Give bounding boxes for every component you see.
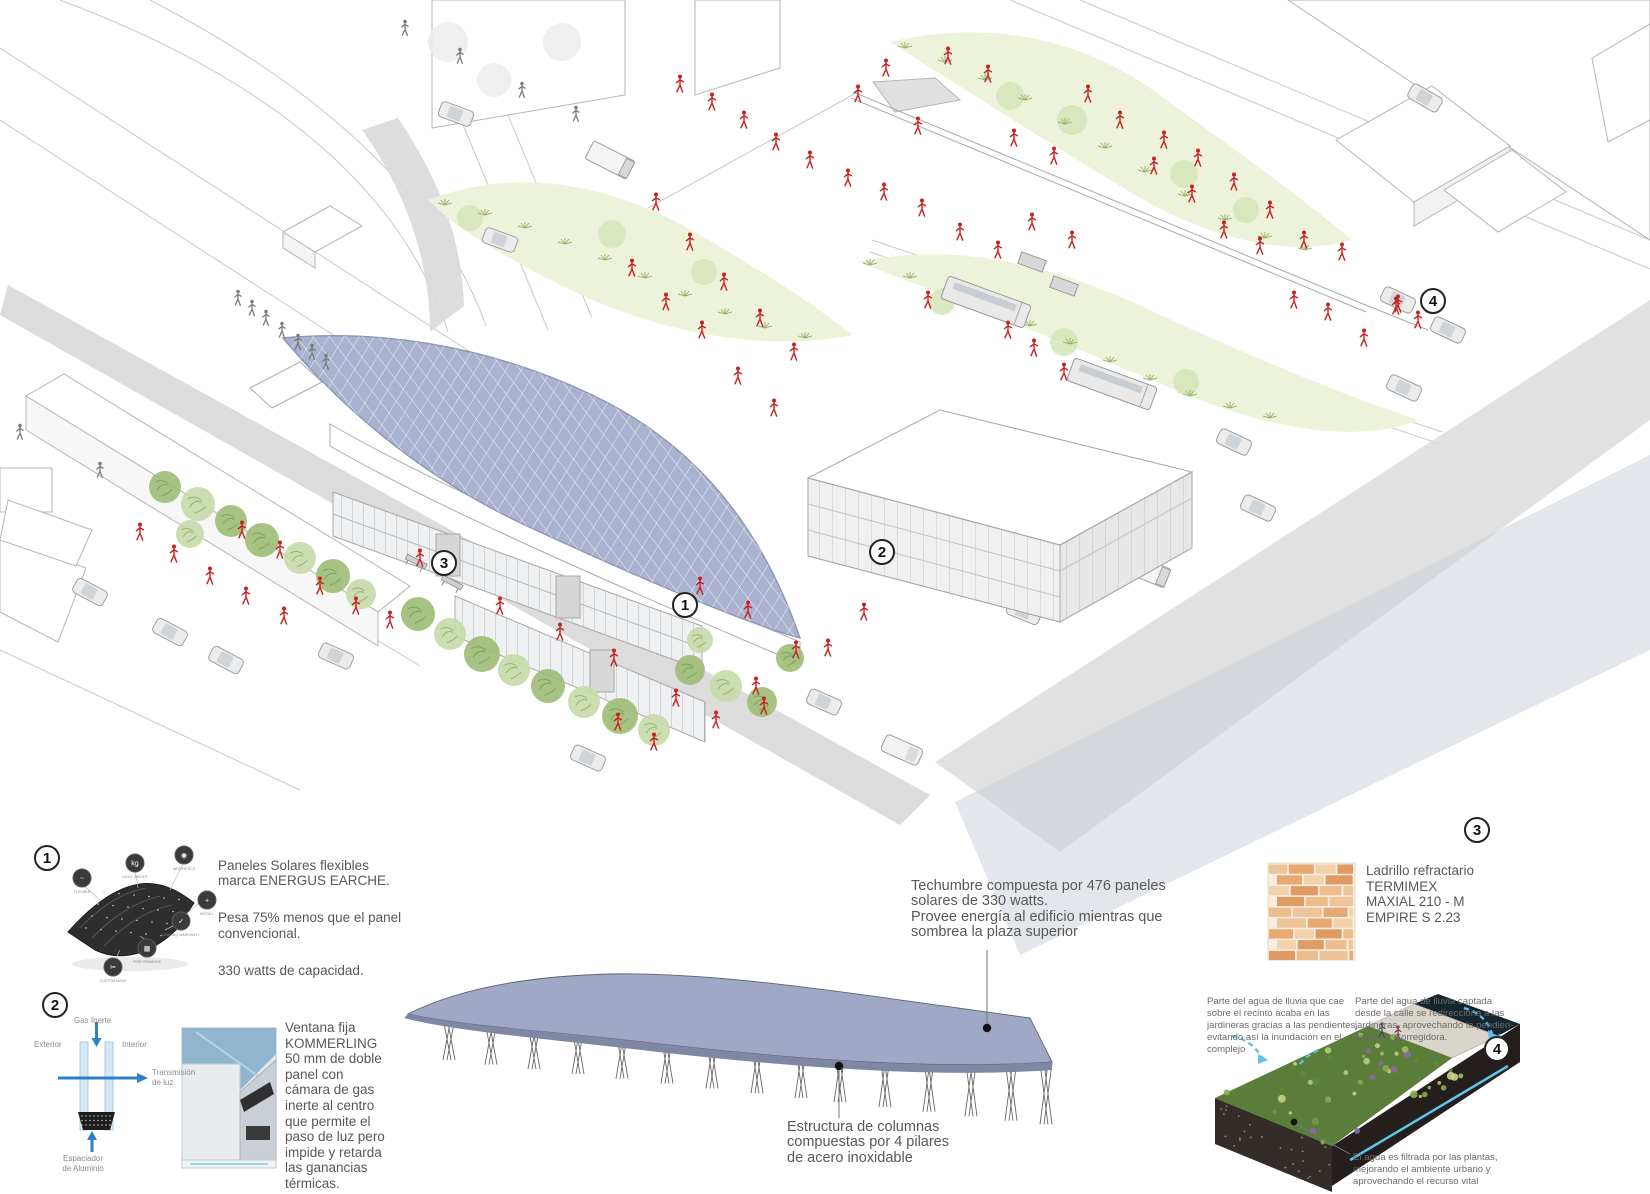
- gas-inerte-label: Gas Inerte: [74, 1016, 111, 1026]
- scene-marker-2: 2: [869, 539, 895, 565]
- svg-text:▦: ▦: [144, 946, 151, 953]
- person-figure: [652, 193, 659, 211]
- car-vehicle: [207, 645, 245, 675]
- person-figure: [772, 133, 779, 151]
- water-note-right: Parte del agua de lluvia captada desde l…: [1355, 996, 1525, 1044]
- interior-label: Interior: [122, 1040, 147, 1050]
- car-vehicle: [71, 577, 109, 607]
- person-figure: [279, 322, 285, 338]
- faint-tree: [457, 205, 483, 231]
- tree: [176, 520, 204, 548]
- person-figure: [573, 106, 579, 122]
- person-figure: [1010, 129, 1017, 147]
- svg-text:+: +: [205, 898, 209, 905]
- aluminium-spacer: [78, 1112, 115, 1130]
- feature-icon-flexible: ~FLEXIBLE: [73, 869, 91, 894]
- person-figure: [734, 367, 741, 385]
- solar-panel-note: Paneles Solares flexibles marca ENERGUS …: [218, 842, 418, 994]
- presentation-board: ~FLEXIBLEkgLIGHT WEIGHT◉AESTHETICS+INSTA…: [0, 0, 1650, 1194]
- espaciador-label: Espaciador de Aluminio: [48, 1154, 118, 1173]
- faint-tree: [1233, 197, 1259, 223]
- person-figure: [770, 399, 777, 417]
- tree: [568, 686, 600, 718]
- person-figure: [170, 545, 177, 563]
- faint-tree: [428, 22, 468, 62]
- solar-panel-product-image: ~FLEXIBLEkgLIGHT WEIGHT◉AESTHETICS+INSTA…: [68, 846, 216, 983]
- solar-panel-note-p2: Pesa 75% menos que el panel convencional…: [218, 910, 418, 941]
- feature-icon-install: +INSTALL: [198, 891, 216, 916]
- window-profile-photo: [182, 1028, 276, 1168]
- tree: [284, 542, 316, 574]
- person-figure: [918, 199, 925, 217]
- car-vehicle: [569, 744, 607, 772]
- svg-text:PERFORMANCE: PERFORMANCE: [133, 960, 162, 964]
- person-figure: [994, 241, 1001, 259]
- person-figure: [206, 567, 213, 585]
- tree: [464, 636, 500, 672]
- svg-text:✂: ✂: [110, 965, 116, 972]
- person-figure: [1324, 303, 1331, 321]
- scene-marker-4: 4: [1420, 288, 1446, 314]
- svg-text:FLEXIBLE: FLEXIBLE: [74, 890, 91, 894]
- svg-text:kg: kg: [131, 861, 139, 868]
- columns-note: Estructura de columnas compuestas por 4 …: [787, 1120, 987, 1166]
- brick-texture-image: [1268, 863, 1355, 960]
- canopy-structure-diagram: [404, 950, 1052, 1124]
- tree: [531, 669, 565, 703]
- person-figure: [676, 75, 683, 93]
- columns-leader-dot: [835, 1062, 843, 1070]
- scene-marker-1: 1: [672, 592, 698, 618]
- person-figure: [882, 59, 889, 77]
- person-figure: [1338, 243, 1345, 261]
- person-figure: [956, 223, 963, 241]
- faint-tree: [1170, 160, 1198, 188]
- person-figure: [280, 607, 287, 625]
- feature-icon-aesthetics: ◉AESTHETICS: [173, 846, 196, 871]
- transmision-label: Transmisión de luz: [152, 1068, 195, 1087]
- tree: [149, 471, 181, 503]
- tree: [401, 597, 435, 631]
- roof-leader-dot: [983, 1024, 991, 1032]
- person-figure: [263, 310, 269, 326]
- car-vehicle: [1385, 374, 1423, 403]
- svg-text:LIGHT WEIGHT: LIGHT WEIGHT: [122, 875, 149, 879]
- person-figure: [880, 183, 887, 201]
- tree: [498, 654, 530, 686]
- person-figure: [249, 300, 255, 316]
- person-figure: [386, 611, 393, 629]
- car-vehicle: [317, 642, 355, 670]
- car-vehicle: [1215, 428, 1253, 457]
- car-vehicle: [1239, 494, 1277, 523]
- tree: [434, 618, 466, 650]
- person-figure: [790, 343, 797, 361]
- curved-road-band: [362, 118, 464, 332]
- column-cluster: [1040, 1063, 1052, 1125]
- svg-text:LEADING WARRANTY: LEADING WARRANTY: [162, 933, 200, 937]
- person-figure: [136, 523, 143, 541]
- car-vehicle: [805, 688, 843, 716]
- car-vehicle: [1429, 316, 1467, 345]
- van-vehicle: [880, 734, 924, 767]
- person-figure: [1360, 329, 1367, 347]
- tree: [710, 670, 742, 702]
- person-figure: [806, 151, 813, 169]
- faint-tree: [598, 220, 626, 248]
- exterior-label: Exterior: [34, 1040, 62, 1050]
- faint-tree: [691, 259, 717, 285]
- person-figure: [402, 20, 408, 36]
- person-figure: [1030, 339, 1037, 357]
- person-figure: [17, 424, 23, 440]
- svg-text:AESTHETICS: AESTHETICS: [173, 867, 196, 871]
- solar-panel-note-p1: Paneles Solares flexibles marca ENERGUS …: [218, 858, 418, 889]
- truck-vehicle: [585, 141, 635, 180]
- person-figure: [914, 117, 921, 135]
- tree: [181, 487, 215, 521]
- solar-panel-note-p3: 330 watts de capacidad.: [218, 963, 418, 979]
- feature-icon-light-weight: kgLIGHT WEIGHT: [122, 854, 149, 879]
- car-vehicle: [151, 617, 189, 647]
- person-figure: [1290, 291, 1297, 309]
- person-figure: [708, 93, 715, 111]
- brick-note: Ladrillo refractario TERMIMEX MAXIAL 210…: [1366, 863, 1526, 925]
- person-figure: [1068, 231, 1075, 249]
- person-figure: [844, 169, 851, 187]
- tree: [346, 579, 376, 609]
- svg-text:INSTALL: INSTALL: [200, 912, 214, 916]
- tree: [675, 655, 705, 685]
- person-figure: [242, 587, 249, 605]
- tree: [245, 523, 279, 557]
- faint-tree: [996, 82, 1024, 110]
- svg-text:✓: ✓: [178, 919, 184, 926]
- tree: [687, 627, 713, 653]
- person-figure: [235, 290, 241, 306]
- person-figure: [1060, 363, 1067, 381]
- svg-text:~: ~: [80, 876, 84, 883]
- callout-3-badge: 3: [1464, 817, 1490, 843]
- tree: [316, 559, 350, 593]
- water-note-bottom: El agua es filtrada por las plantas, mej…: [1353, 1152, 1533, 1188]
- water-note-left: Parte del agua de lluvia que cae sobre e…: [1207, 996, 1372, 1056]
- scene-marker-3: 3: [431, 550, 457, 576]
- person-figure: [860, 603, 867, 621]
- person-figure: [740, 111, 747, 129]
- faint-tree: [543, 23, 581, 61]
- roof-note: Techumbre compuesta por 476 paneles sola…: [911, 879, 1191, 941]
- callout-1-badge: 1: [34, 845, 60, 871]
- person-figure: [824, 639, 831, 657]
- svg-text:CUSTOM MADE: CUSTOM MADE: [100, 979, 127, 983]
- window-note: Ventana fija KOMMERLING 50 mm de doble p…: [285, 1020, 415, 1192]
- svg-text:◉: ◉: [181, 853, 187, 860]
- callout-2-badge: 2: [42, 992, 68, 1018]
- box-building: [808, 410, 1192, 622]
- person-figure: [1050, 147, 1057, 165]
- faint-tree: [477, 63, 511, 97]
- person-figure: [1028, 213, 1035, 231]
- plaza-ramp-landing: [873, 78, 960, 112]
